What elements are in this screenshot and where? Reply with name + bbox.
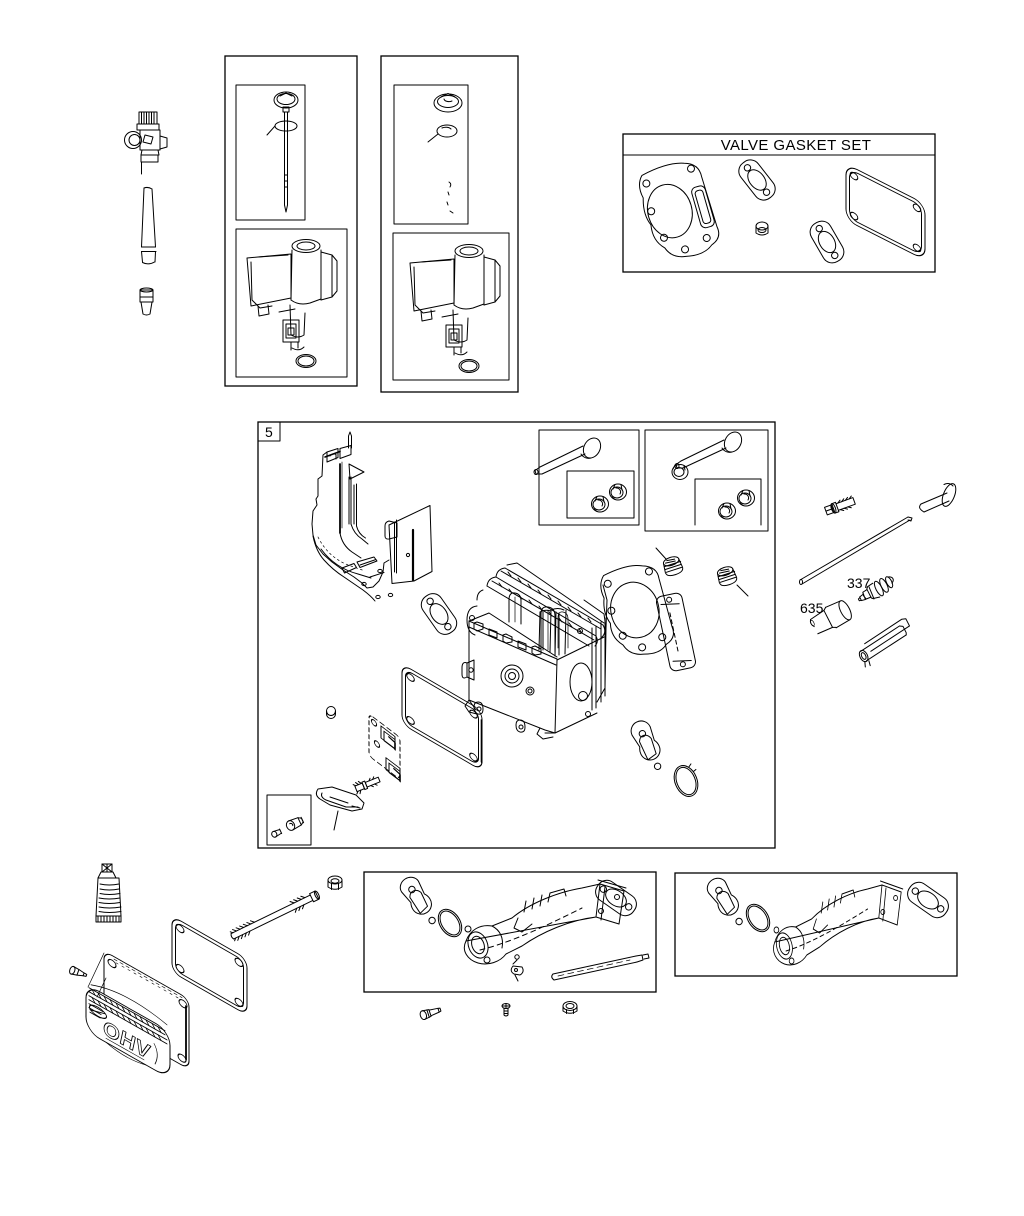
svg-text:5: 5 <box>265 424 273 440</box>
svg-text:VALVE GASKET SET: VALVE GASKET SET <box>721 137 872 154</box>
